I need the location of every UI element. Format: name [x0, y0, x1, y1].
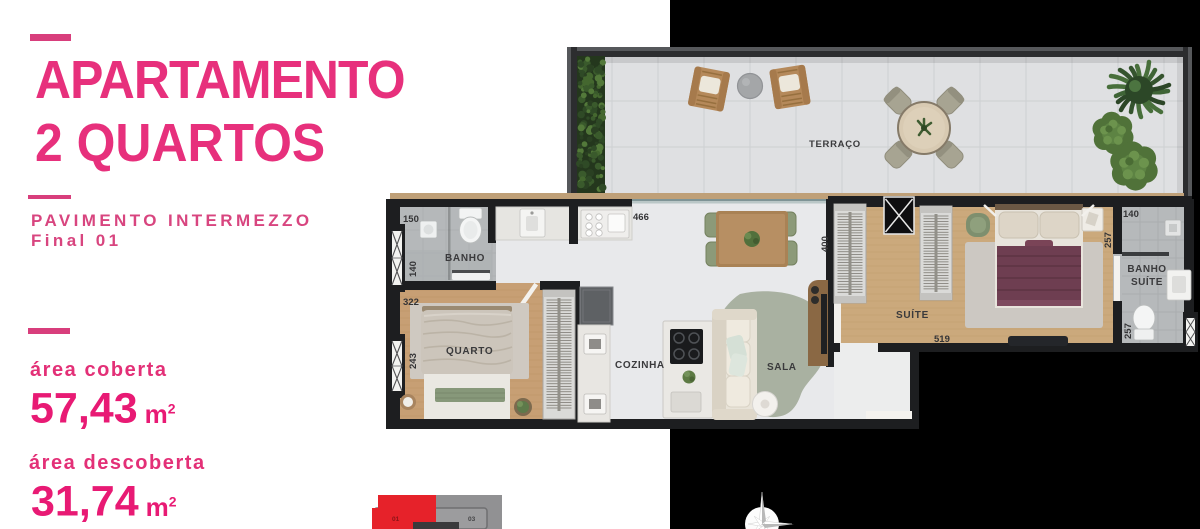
svg-text:BANHO: BANHO	[445, 253, 485, 264]
svg-text:257: 257	[1103, 232, 1114, 248]
svg-text:322: 322	[403, 297, 419, 308]
svg-text:400: 400	[820, 236, 831, 252]
svg-text:03: 03	[468, 516, 476, 523]
svg-text:QUARTO: QUARTO	[446, 346, 493, 357]
svg-text:140: 140	[1123, 209, 1139, 220]
svg-text:257: 257	[1123, 323, 1134, 339]
svg-text:TERRAÇO: TERRAÇO	[809, 139, 861, 150]
svg-text:150: 150	[403, 214, 419, 225]
svg-text:243: 243	[408, 353, 419, 369]
svg-text:SUÍTE: SUÍTE	[1131, 275, 1163, 288]
svg-text:SALA: SALA	[767, 362, 797, 373]
svg-text:519: 519	[934, 334, 950, 345]
svg-text:COZINHA: COZINHA	[615, 360, 665, 371]
svg-text:140: 140	[408, 261, 419, 277]
svg-text:01: 01	[392, 516, 400, 523]
svg-text:SUÍTE: SUÍTE	[896, 308, 929, 321]
svg-text:BANHO: BANHO	[1127, 264, 1166, 275]
svg-text:466: 466	[633, 212, 649, 223]
